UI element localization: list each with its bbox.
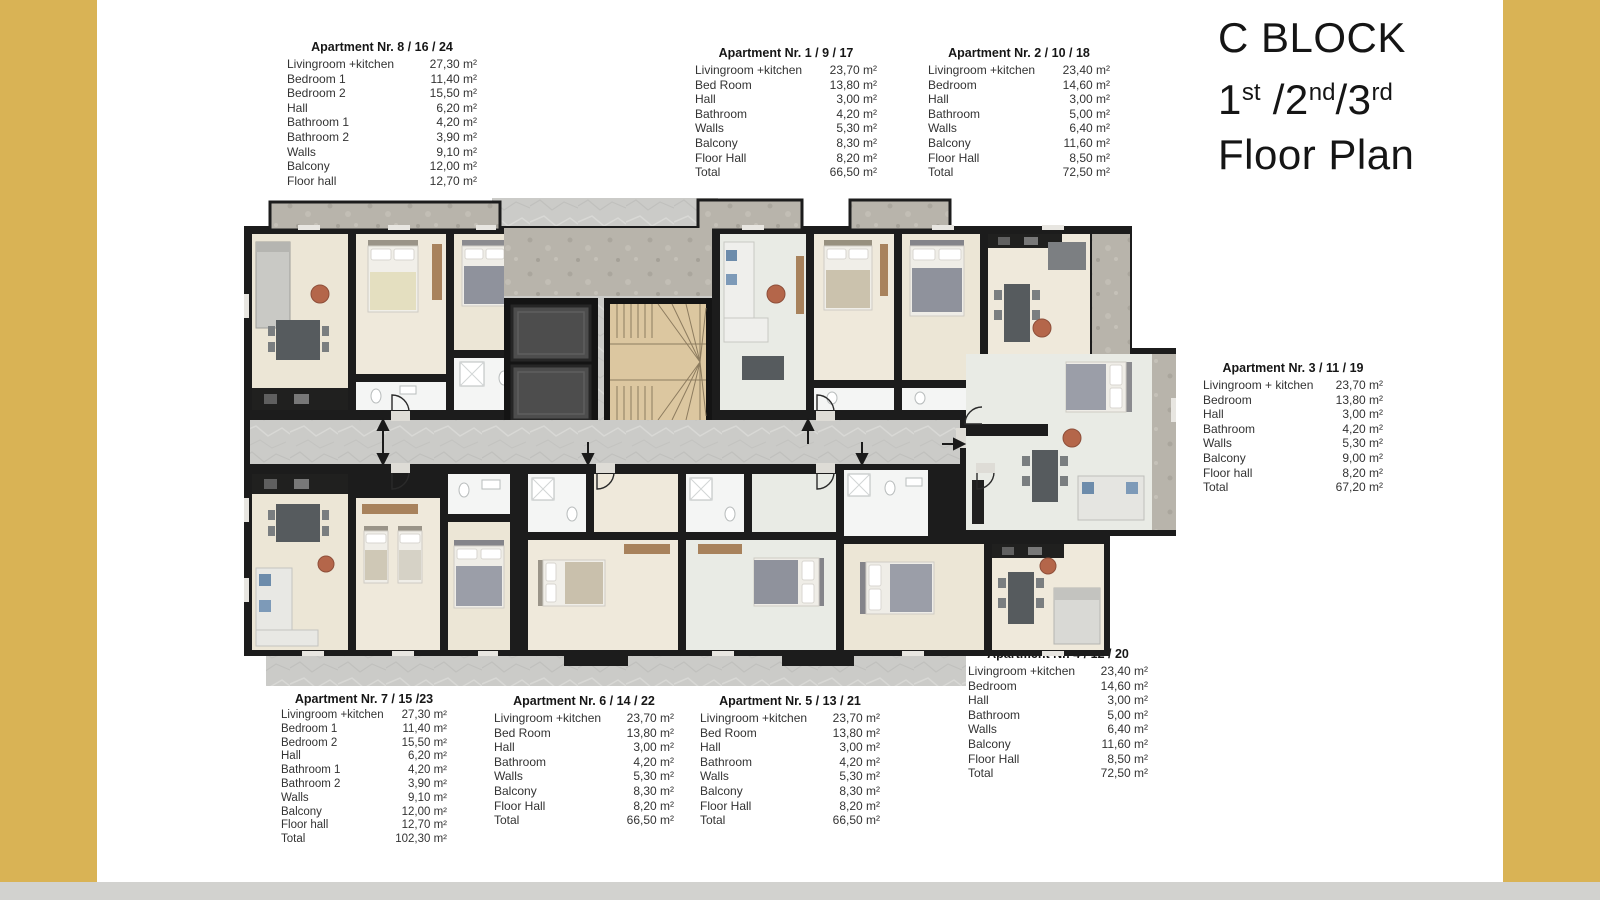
apartment-rows: Livingroom +kitchen23,70 m²Bed Room13,80… (700, 711, 880, 828)
spec-row: Balcony8,30 m² (695, 136, 877, 151)
spec-row: Walls5,30 m² (1203, 436, 1383, 451)
spec-value: 72,50 m² (1101, 766, 1148, 781)
spec-label: Bathroom (968, 708, 1020, 723)
pouf-icon (1033, 319, 1051, 337)
dining-table-icon (742, 356, 784, 380)
interior-wall (966, 424, 1048, 436)
spec-label: Hall (928, 92, 949, 107)
spec-row: Total66,50 m² (700, 813, 880, 828)
apartment-6-rooms (528, 474, 678, 650)
spec-row: Bathroom4,20 m² (494, 755, 674, 770)
spec-value: 11,40 m² (431, 72, 477, 87)
apartment-title: Apartment Nr. 5 / 13 / 21 (700, 694, 880, 708)
spec-label: Bathroom (700, 755, 752, 770)
title-segment: rd (1371, 79, 1392, 106)
spec-row: Hall3,00 m² (928, 92, 1110, 107)
bathroom-fixtures (915, 392, 925, 404)
bathroom-fixtures (827, 392, 837, 404)
sofa-icon (1078, 476, 1144, 520)
pouf-icon (318, 556, 334, 572)
spec-label: Hall (695, 92, 716, 107)
spec-label: Bathroom 2 (281, 778, 340, 792)
spec-value: 13,80 m² (830, 78, 877, 93)
spec-row: Balcony12,00 m² (281, 806, 447, 820)
spec-label: Floor Hall (494, 799, 545, 814)
spec-value: 3,90 m² (436, 130, 477, 145)
wardrobe-icon (698, 544, 742, 554)
bathroom-fixtures (459, 483, 469, 497)
spec-row: Walls6,40 m² (968, 722, 1148, 737)
apartment-title: Apartment Nr. 8 / 16 / 24 (287, 40, 477, 54)
spec-label: Bathroom (1203, 422, 1255, 437)
spec-value: 9,10 m² (408, 792, 447, 806)
spec-label: Walls (700, 769, 729, 784)
spec-label: Total (695, 165, 720, 180)
spec-label: Livingroom +kitchen (928, 63, 1035, 78)
spec-label: Bedroom (928, 78, 977, 93)
dining-table-icon (1032, 450, 1058, 502)
apartment-spec-3: Apartment Nr. 3 / 11 / 19 Livingroom + k… (1203, 361, 1383, 495)
spec-row: Livingroom +kitchen23,70 m² (695, 63, 877, 78)
bed-icon (910, 240, 964, 316)
spec-row: Walls5,30 m² (695, 121, 877, 136)
spec-label: Balcony (1203, 451, 1246, 466)
spec-label: Livingroom + kitchen (1203, 378, 1313, 393)
spec-label: Bathroom (695, 107, 747, 122)
spec-value: 9,00 m² (1342, 451, 1383, 466)
spec-value: 6,40 m² (1069, 121, 1110, 136)
spec-label: Total (968, 766, 993, 781)
spec-value: 3,00 m² (1107, 693, 1148, 708)
spec-row: Floor hall8,20 m² (1203, 466, 1383, 481)
spec-label: Total (494, 813, 519, 828)
spec-value: 72,50 m² (1063, 165, 1110, 180)
apartment-5-rooms (686, 474, 836, 650)
spec-value: 6,20 m² (436, 101, 477, 116)
spec-value: 3,00 m² (839, 740, 880, 755)
spec-row: Floor Hall8,50 m² (928, 151, 1110, 166)
spec-value: 14,60 m² (1063, 78, 1110, 93)
wardrobe-icon (880, 244, 888, 296)
spec-row: Bathroom 14,20 m² (281, 764, 447, 778)
spec-value: 8,30 m² (633, 784, 674, 799)
spec-row: Balcony12,00 m² (287, 159, 477, 174)
spec-row: Floor Hall8,50 m² (968, 752, 1148, 767)
spec-label: Total (700, 813, 725, 828)
central-core (504, 228, 712, 426)
bed-icon (398, 526, 422, 583)
spec-label: Total (281, 833, 305, 847)
spec-value: 5,30 m² (633, 769, 674, 784)
tv-unit-icon (796, 256, 804, 314)
spec-label: Bedroom 1 (287, 72, 346, 87)
spec-row: Bed Room13,80 m² (494, 726, 674, 741)
spec-row: Balcony9,00 m² (1203, 451, 1383, 466)
spec-row: Bathroom5,00 m² (968, 708, 1148, 723)
bathroom-fixtures (725, 507, 735, 521)
spec-label: Walls (928, 121, 957, 136)
apartment-8-rooms (252, 234, 528, 410)
bed-icon (754, 558, 824, 606)
spec-label: Hall (494, 740, 515, 755)
spec-row: Bedroom14,60 m² (928, 78, 1110, 93)
spec-label: Balcony (494, 784, 537, 799)
spec-row: Total102,30 m² (281, 833, 447, 847)
spec-value: 3,90 m² (408, 778, 447, 792)
spec-label: Floor hall (287, 174, 336, 189)
spec-row: Bedroom 111,40 m² (281, 723, 447, 737)
spec-row: Walls9,10 m² (281, 792, 447, 806)
spec-value: 3,00 m² (836, 92, 877, 107)
bed-icon (538, 560, 605, 606)
spec-row: Hall3,00 m² (494, 740, 674, 755)
pouf-icon (767, 285, 785, 303)
spec-row: Bathroom 23,90 m² (281, 778, 447, 792)
title-segment: /2 (1261, 76, 1309, 123)
apartment-rows: Livingroom +kitchen27,30 m²Bedroom 111,4… (281, 709, 447, 847)
spec-label: Bathroom (494, 755, 546, 770)
spec-row: Floor Hall8,20 m² (700, 799, 880, 814)
apartment-rows: Livingroom +kitchen23,70 m²Bed Room13,80… (494, 711, 674, 828)
spec-label: Floor hall (281, 819, 328, 833)
spec-value: 66,50 m² (830, 165, 877, 180)
spec-row: Hall3,00 m² (700, 740, 880, 755)
spec-row: Bedroom 111,40 m² (287, 72, 477, 87)
spec-value: 8,20 m² (839, 799, 880, 814)
spec-value: 3,00 m² (633, 740, 674, 755)
spec-value: 6,20 m² (408, 750, 447, 764)
elevator-shaft-icon (504, 298, 598, 426)
spec-value: 13,80 m² (833, 726, 880, 741)
corridor (250, 420, 960, 464)
spec-label: Total (1203, 480, 1228, 495)
bathroom-fixtures (567, 507, 577, 521)
apartment-spec-2: Apartment Nr. 2 / 10 / 18 Livingroom +ki… (928, 46, 1110, 180)
spec-value: 23,70 m² (833, 711, 880, 726)
dining-table-icon (1008, 572, 1034, 624)
bed-icon (824, 240, 872, 310)
apartment-spec-8: Apartment Nr. 8 / 16 / 24 Livingroom +ki… (287, 40, 477, 188)
dining-table-icon (1004, 284, 1030, 342)
spec-value: 66,50 m² (627, 813, 674, 828)
spec-label: Livingroom +kitchen (281, 709, 384, 723)
bathroom-fixtures (885, 481, 895, 495)
apartment-title: Apartment Nr. 3 / 11 / 19 (1203, 361, 1383, 375)
spec-label: Bathroom (928, 107, 980, 122)
spec-row: Floor hall12,70 m² (281, 819, 447, 833)
spec-value: 23,70 m² (627, 711, 674, 726)
title-segment: nd (1309, 79, 1336, 106)
spec-row: Hall3,00 m² (1203, 407, 1383, 422)
spec-row: Livingroom +kitchen23,70 m² (494, 711, 674, 726)
spec-label: Livingroom +kitchen (287, 57, 394, 72)
apartment-rows: Livingroom +kitchen23,40 m²Bedroom14,60 … (928, 63, 1110, 180)
bottom-gray-bar (0, 882, 1600, 900)
spec-value: 5,00 m² (1107, 708, 1148, 723)
bed-icon (368, 240, 418, 312)
spec-row: Total72,50 m² (928, 165, 1110, 180)
spec-value: 8,50 m² (1107, 752, 1148, 767)
bed-icon (454, 540, 504, 608)
spec-row: Balcony8,30 m² (494, 784, 674, 799)
spec-label: Floor Hall (700, 799, 751, 814)
spec-row: Total66,50 m² (695, 165, 877, 180)
title-subtitle: Floor Plan (1218, 127, 1518, 182)
spec-value: 8,20 m² (633, 799, 674, 814)
spec-label: Walls (287, 145, 316, 160)
spec-value: 8,20 m² (836, 151, 877, 166)
staircase-icon (604, 298, 712, 426)
spec-label: Livingroom +kitchen (494, 711, 601, 726)
spec-label: Balcony (928, 136, 971, 151)
spec-row: Balcony8,30 m² (700, 784, 880, 799)
spec-value: 12,70 m² (430, 174, 477, 189)
spec-value: 12,00 m² (402, 806, 447, 820)
spec-label: Bedroom (1203, 393, 1252, 408)
wardrobe-icon (432, 244, 442, 300)
spec-row: Bathroom 23,90 m² (287, 130, 477, 145)
spec-label: Bathroom 1 (281, 764, 340, 778)
spec-label: Hall (281, 750, 301, 764)
apartment-rows: Livingroom +kitchen23,70 m²Bed Room13,80… (695, 63, 877, 180)
desk-icon (1048, 242, 1086, 270)
spec-label: Bed Room (695, 78, 752, 93)
bed-icon (462, 240, 508, 306)
spec-value: 4,20 m² (436, 115, 477, 130)
spec-value: 8,50 m² (1069, 151, 1110, 166)
spec-value: 4,20 m² (1342, 422, 1383, 437)
spec-value: 5,30 m² (1342, 436, 1383, 451)
spec-row: Bedroom13,80 m² (1203, 393, 1383, 408)
spec-label: Total (928, 165, 953, 180)
left-accent-bar (0, 0, 97, 900)
spec-label: Bedroom 2 (287, 86, 346, 101)
spec-row: Walls6,40 m² (928, 121, 1110, 136)
title-segment: 1 (1218, 76, 1242, 123)
spec-value: 15,50 m² (402, 737, 447, 751)
spec-label: Floor Hall (928, 151, 979, 166)
spec-row: Livingroom +kitchen27,30 m² (281, 709, 447, 723)
page-title: C BLOCK 1st /2nd/3rd Floor Plan (1218, 10, 1518, 182)
spec-label: Floor Hall (695, 151, 746, 166)
spec-label: Livingroom +kitchen (700, 711, 807, 726)
title-block-name: C BLOCK (1218, 10, 1518, 65)
spec-label: Floor Hall (968, 752, 1019, 767)
spec-label: Hall (1203, 407, 1224, 422)
spec-label: Hall (287, 101, 308, 116)
spec-label: Hall (700, 740, 721, 755)
spec-value: 102,30 m² (395, 833, 447, 847)
spec-value: 11,60 m² (1064, 136, 1110, 151)
spec-label: Bed Room (700, 726, 757, 741)
spec-label: Bed Room (494, 726, 551, 741)
spec-label: Walls (695, 121, 724, 136)
wardrobe-icon (362, 504, 418, 514)
spec-value: 11,60 m² (1102, 737, 1148, 752)
spec-value: 3,00 m² (1069, 92, 1110, 107)
bed-icon (1066, 362, 1132, 412)
spec-value: 4,20 m² (836, 107, 877, 122)
floor-plan (242, 198, 1182, 688)
spec-row: Hall3,00 m² (968, 693, 1148, 708)
apartment-title: Apartment Nr. 2 / 10 / 18 (928, 46, 1110, 60)
spec-value: 4,20 m² (408, 764, 447, 778)
spec-row: Bed Room13,80 m² (700, 726, 880, 741)
spec-row: Livingroom +kitchen23,40 m² (928, 63, 1110, 78)
apartment-7-rooms (252, 474, 510, 650)
spec-label: Bedroom 1 (281, 723, 337, 737)
spec-label: Balcony (281, 806, 322, 820)
spec-row: Hall3,00 m² (695, 92, 877, 107)
spec-label: Walls (281, 792, 309, 806)
title-segment: st (1242, 79, 1261, 106)
sofa-icon (1054, 588, 1100, 644)
title-floor-numbers: 1st /2nd/3rd (1218, 65, 1518, 127)
spec-label: Bathroom 1 (287, 115, 349, 130)
spec-value: 23,70 m² (830, 63, 877, 78)
apartment-rows: Livingroom + kitchen23,70 m²Bedroom13,80… (1203, 378, 1383, 495)
spec-value: 8,20 m² (1342, 466, 1383, 481)
spec-row: Bathroom5,00 m² (928, 107, 1110, 122)
spec-label: Floor hall (1203, 466, 1252, 481)
spec-value: 5,30 m² (836, 121, 877, 136)
apartment-3-rooms (966, 354, 1176, 530)
spec-row: Bedroom 215,50 m² (287, 86, 477, 101)
spec-value: 67,20 m² (1336, 480, 1383, 495)
spec-value: 11,40 m² (402, 723, 447, 737)
bed-icon (860, 562, 934, 614)
spec-row: Hall6,20 m² (281, 750, 447, 764)
spec-row: Bathroom4,20 m² (695, 107, 877, 122)
apartment-title: Apartment Nr. 7 / 15 /23 (281, 692, 447, 706)
spec-row: Balcony11,60 m² (928, 136, 1110, 151)
pouf-icon (1040, 558, 1056, 574)
spec-row: Walls5,30 m² (700, 769, 880, 784)
spec-value: 12,70 m² (402, 819, 447, 833)
apartment-spec-1: Apartment Nr. 1 / 9 / 17 Livingroom +kit… (695, 46, 877, 180)
spec-row: Bathroom4,20 m² (700, 755, 880, 770)
spec-row: Total66,50 m² (494, 813, 674, 828)
spec-value: 8,30 m² (839, 784, 880, 799)
spec-value: 4,20 m² (839, 755, 880, 770)
spec-value: 6,40 m² (1107, 722, 1148, 737)
apartment-spec-6: Apartment Nr. 6 / 14 / 22 Livingroom +ki… (494, 694, 674, 828)
apartment-title: Apartment Nr. 6 / 14 / 22 (494, 694, 674, 708)
spec-value: 4,20 m² (633, 755, 674, 770)
spec-value: 23,40 m² (1063, 63, 1110, 78)
spec-row: Total72,50 m² (968, 766, 1148, 781)
pouf-icon (1063, 429, 1081, 447)
spec-label: Walls (1203, 436, 1232, 451)
spec-value: 9,10 m² (436, 145, 477, 160)
spec-row: Floor Hall8,20 m² (494, 799, 674, 814)
spec-row: Walls5,30 m² (494, 769, 674, 784)
apartment-title: Apartment Nr. 1 / 9 / 17 (695, 46, 877, 60)
spec-label: Balcony (968, 737, 1011, 752)
spec-row: Total67,20 m² (1203, 480, 1383, 495)
dining-table-icon (276, 504, 320, 542)
spec-value: 3,00 m² (1342, 407, 1383, 422)
bed-icon (364, 526, 388, 583)
spec-label: Bedroom 2 (281, 737, 337, 751)
spec-value: 5,30 m² (839, 769, 880, 784)
spec-row: Floor Hall8,20 m² (695, 151, 877, 166)
spec-row: Floor hall12,70 m² (287, 174, 477, 189)
spec-value: 66,50 m² (833, 813, 880, 828)
spec-row: Livingroom + kitchen23,70 m² (1203, 378, 1383, 393)
dining-table-icon (276, 320, 320, 360)
spec-value: 8,30 m² (836, 136, 877, 151)
spec-label: Balcony (287, 159, 330, 174)
spec-value: 23,70 m² (1336, 378, 1383, 393)
pouf-icon (311, 285, 329, 303)
spec-row: Bed Room13,80 m² (695, 78, 877, 93)
spec-value: 5,00 m² (1069, 107, 1110, 122)
spec-label: Bathroom 2 (287, 130, 349, 145)
spec-row: Livingroom +kitchen23,70 m² (700, 711, 880, 726)
title-segment: /3 (1335, 76, 1371, 123)
spec-value: 15,50 m² (430, 86, 477, 101)
spec-label: Balcony (700, 784, 743, 799)
spec-label: Hall (968, 693, 989, 708)
spec-label: Livingroom +kitchen (695, 63, 802, 78)
slide: C BLOCK 1st /2nd/3rd Floor Plan Apartmen… (0, 0, 1600, 900)
spec-value: 12,00 m² (430, 159, 477, 174)
apartment-spec-7: Apartment Nr. 7 / 15 /23 Livingroom +kit… (281, 692, 447, 847)
spec-row: Bathroom 14,20 m² (287, 115, 477, 130)
spec-row: Bedroom 215,50 m² (281, 737, 447, 751)
kitchen-counter-icon (972, 480, 984, 524)
apartment-spec-5: Apartment Nr. 5 / 13 / 21 Livingroom +ki… (700, 694, 880, 828)
wardrobe-icon (624, 544, 670, 554)
spec-label: Walls (494, 769, 523, 784)
spec-row: Balcony11,60 m² (968, 737, 1148, 752)
spec-value: 13,80 m² (1336, 393, 1383, 408)
spec-label: Balcony (695, 136, 738, 151)
spec-row: Livingroom +kitchen27,30 m² (287, 57, 477, 72)
spec-row: Walls9,10 m² (287, 145, 477, 160)
apartment-rows: Livingroom +kitchen27,30 m²Bedroom 111,4… (287, 57, 477, 188)
spec-label: Walls (968, 722, 997, 737)
spec-row: Bathroom4,20 m² (1203, 422, 1383, 437)
spec-row: Hall6,20 m² (287, 101, 477, 116)
spec-value: 13,80 m² (627, 726, 674, 741)
spec-value: 27,30 m² (430, 57, 477, 72)
spec-value: 27,30 m² (402, 709, 447, 723)
